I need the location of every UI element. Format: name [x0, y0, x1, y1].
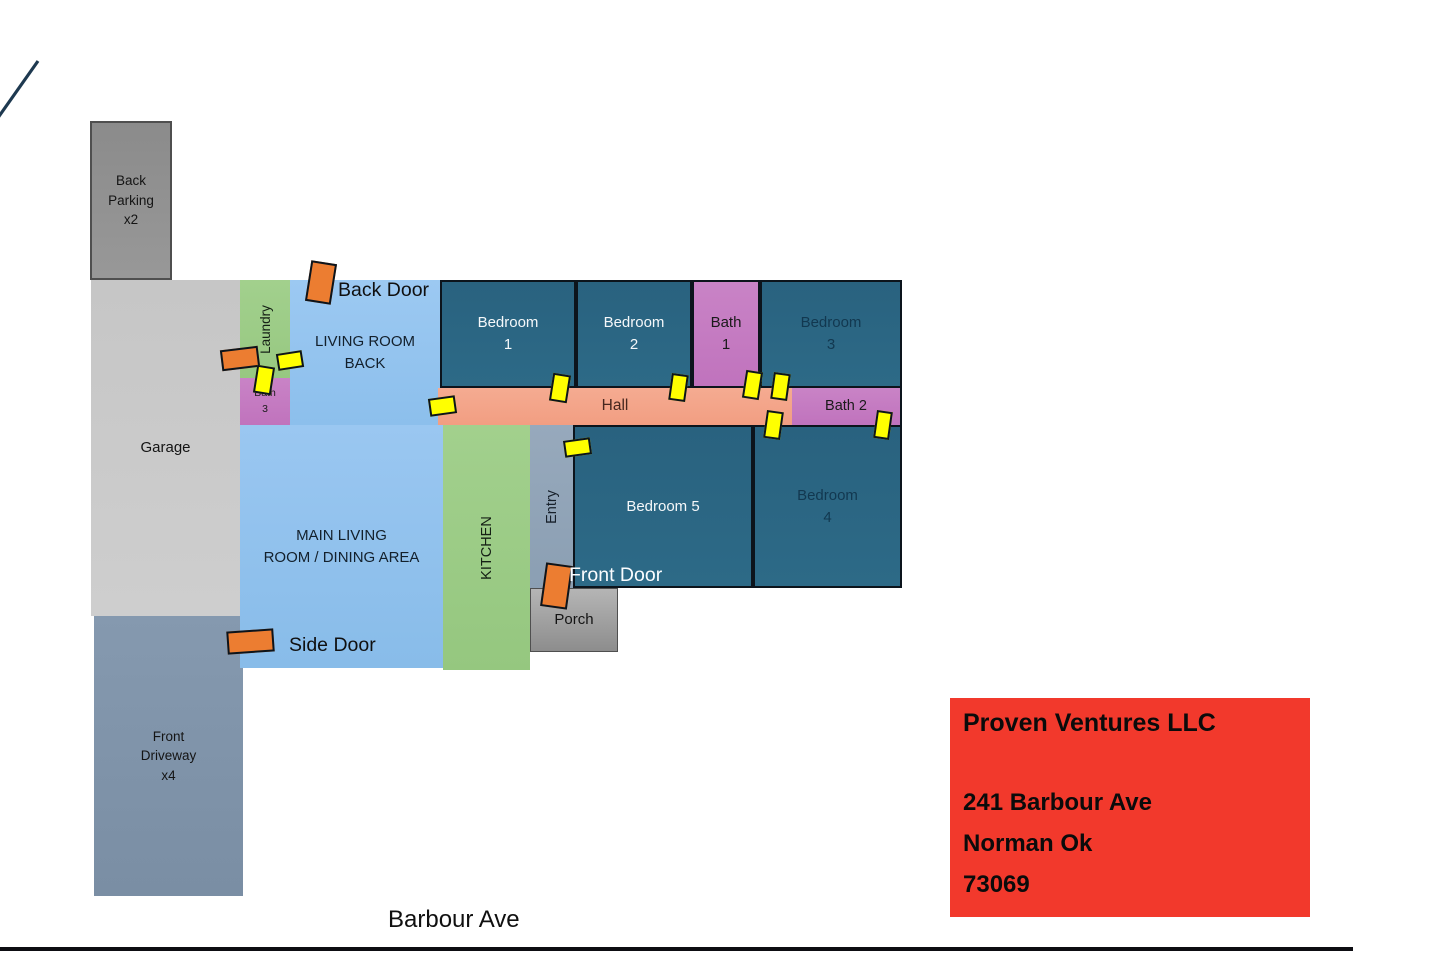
room-label-main-living-dining: MAIN LIVING ROOM / DINING AREA [249, 525, 434, 569]
company-name: Proven Ventures LLC [963, 709, 1300, 738]
room-garage: Garage [91, 280, 240, 616]
room-label-garage: Garage [140, 437, 190, 459]
address-line-3: 73069 [963, 864, 1300, 905]
room-label-hall: Hall [602, 395, 629, 417]
room-label-porch: Porch [554, 609, 593, 631]
front-door-label: Front Door [569, 564, 662, 587]
room-label-bedroom-3: Bedroom 3 [788, 312, 874, 356]
interior-door-marker-hall-west [428, 395, 457, 417]
street-line [0, 947, 1353, 951]
room-label-laundry: Laundry [257, 305, 272, 354]
address-line-1: 241 Barbour Ave [963, 782, 1300, 823]
room-bedroom-3: Bedroom 3 [760, 280, 902, 388]
room-bedroom-2: Bedroom 2 [576, 280, 692, 388]
room-label-kitchen: KITCHEN [479, 516, 495, 580]
room-bedroom-1: Bedroom 1 [440, 280, 576, 388]
room-hall: Hall [438, 388, 792, 425]
back-door-label: Back Door [338, 279, 429, 302]
floor-plan-canvas: Back Parking x2 Garage Front Driveway x4… [0, 0, 1440, 960]
room-front-driveway: Front Driveway x4 [94, 616, 243, 896]
side-door-marker [226, 628, 274, 654]
room-label-bedroom-1: Bedroom 1 [465, 312, 551, 356]
curb-diagonal-line [0, 0, 70, 150]
street-name-label: Barbour Ave [388, 906, 520, 934]
room-label-bedroom-4: Bedroom 4 [785, 485, 871, 529]
company-info-box: Proven Ventures LLC 241 Barbour Ave Norm… [950, 698, 1310, 917]
room-label-front-driveway: Front Driveway x4 [132, 727, 206, 786]
room-label-back-parking: Back Parking x2 [100, 171, 162, 230]
room-kitchen: KITCHEN [443, 425, 530, 670]
room-bedroom-4: Bedroom 4 [753, 425, 902, 588]
room-label-bedroom-5: Bedroom 5 [626, 496, 699, 518]
room-label-bath-1: Bath 1 [705, 312, 747, 356]
room-label-entry: Entry [544, 490, 560, 524]
address-line-2: Norman Ok [963, 823, 1300, 864]
room-label-living-room-back: LIVING ROOM BACK [303, 331, 428, 375]
room-label-bedroom-2: Bedroom 2 [591, 312, 677, 356]
room-label-bath-2: Bath 2 [825, 396, 867, 417]
side-door-label: Side Door [289, 634, 376, 657]
room-back-parking: Back Parking x2 [90, 121, 172, 280]
